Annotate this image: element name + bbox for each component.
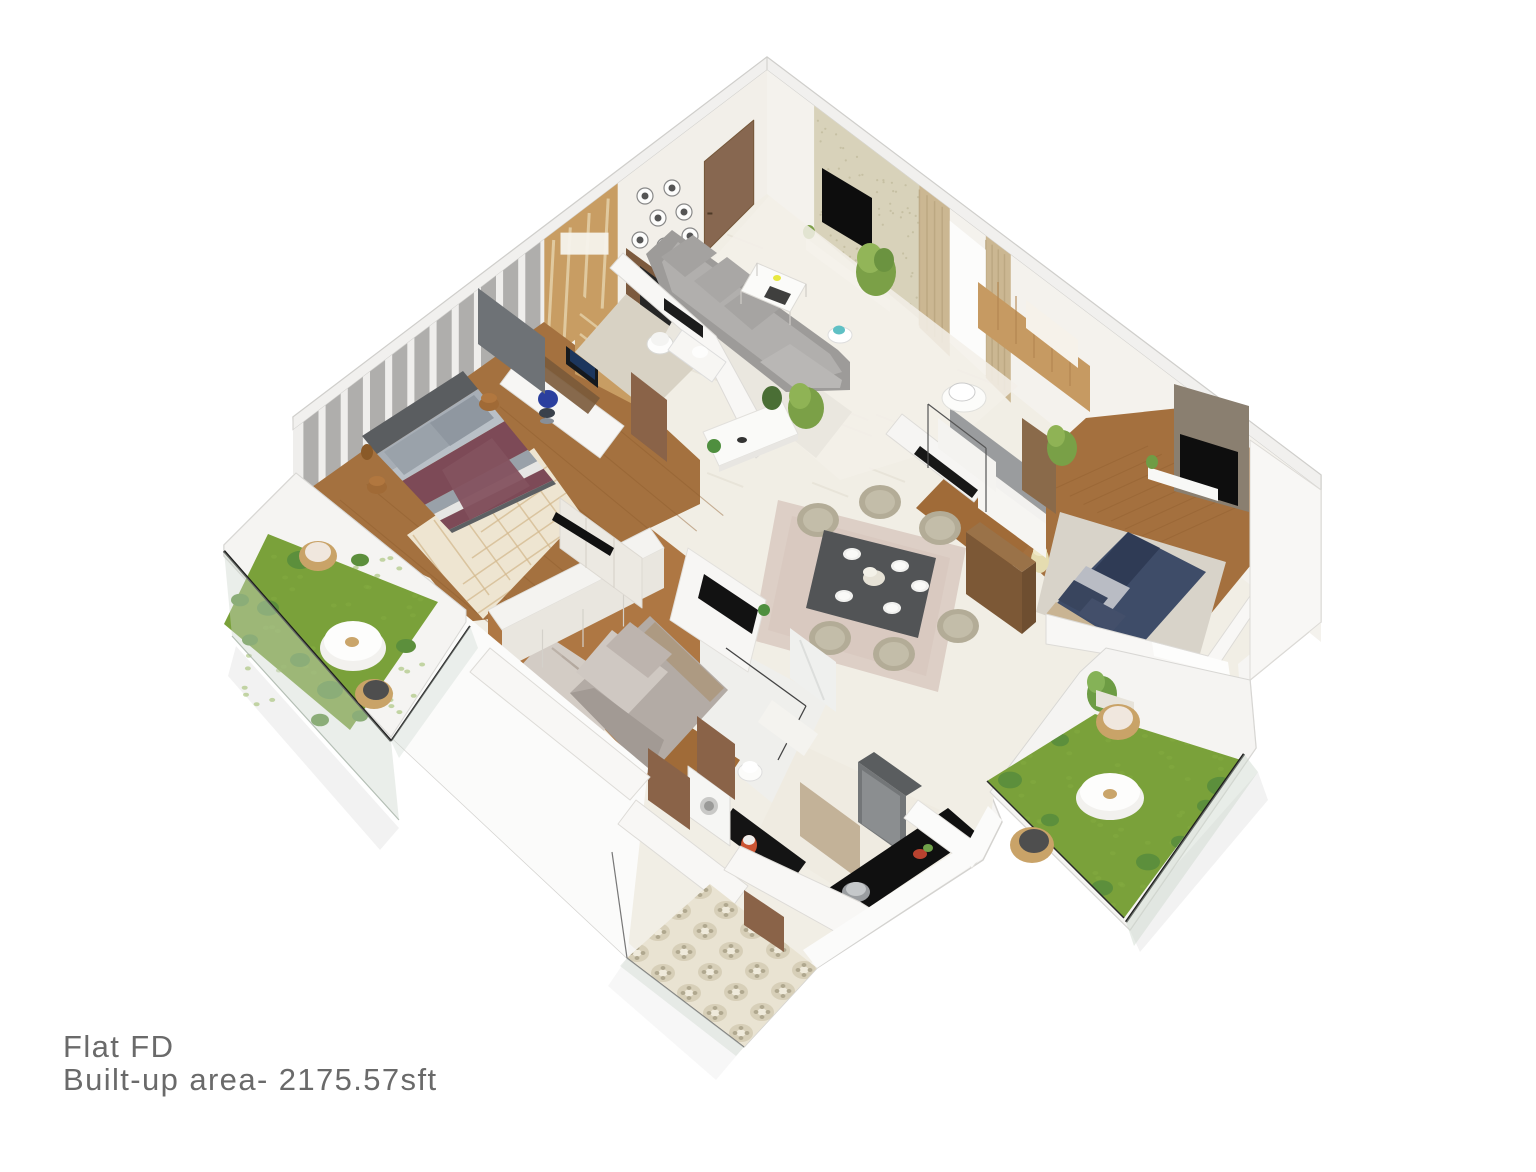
svg-text:Flat FD: Flat FD xyxy=(63,1029,174,1064)
svg-text:Built-up area- 2175.57sft: Built-up area- 2175.57sft xyxy=(63,1062,438,1097)
